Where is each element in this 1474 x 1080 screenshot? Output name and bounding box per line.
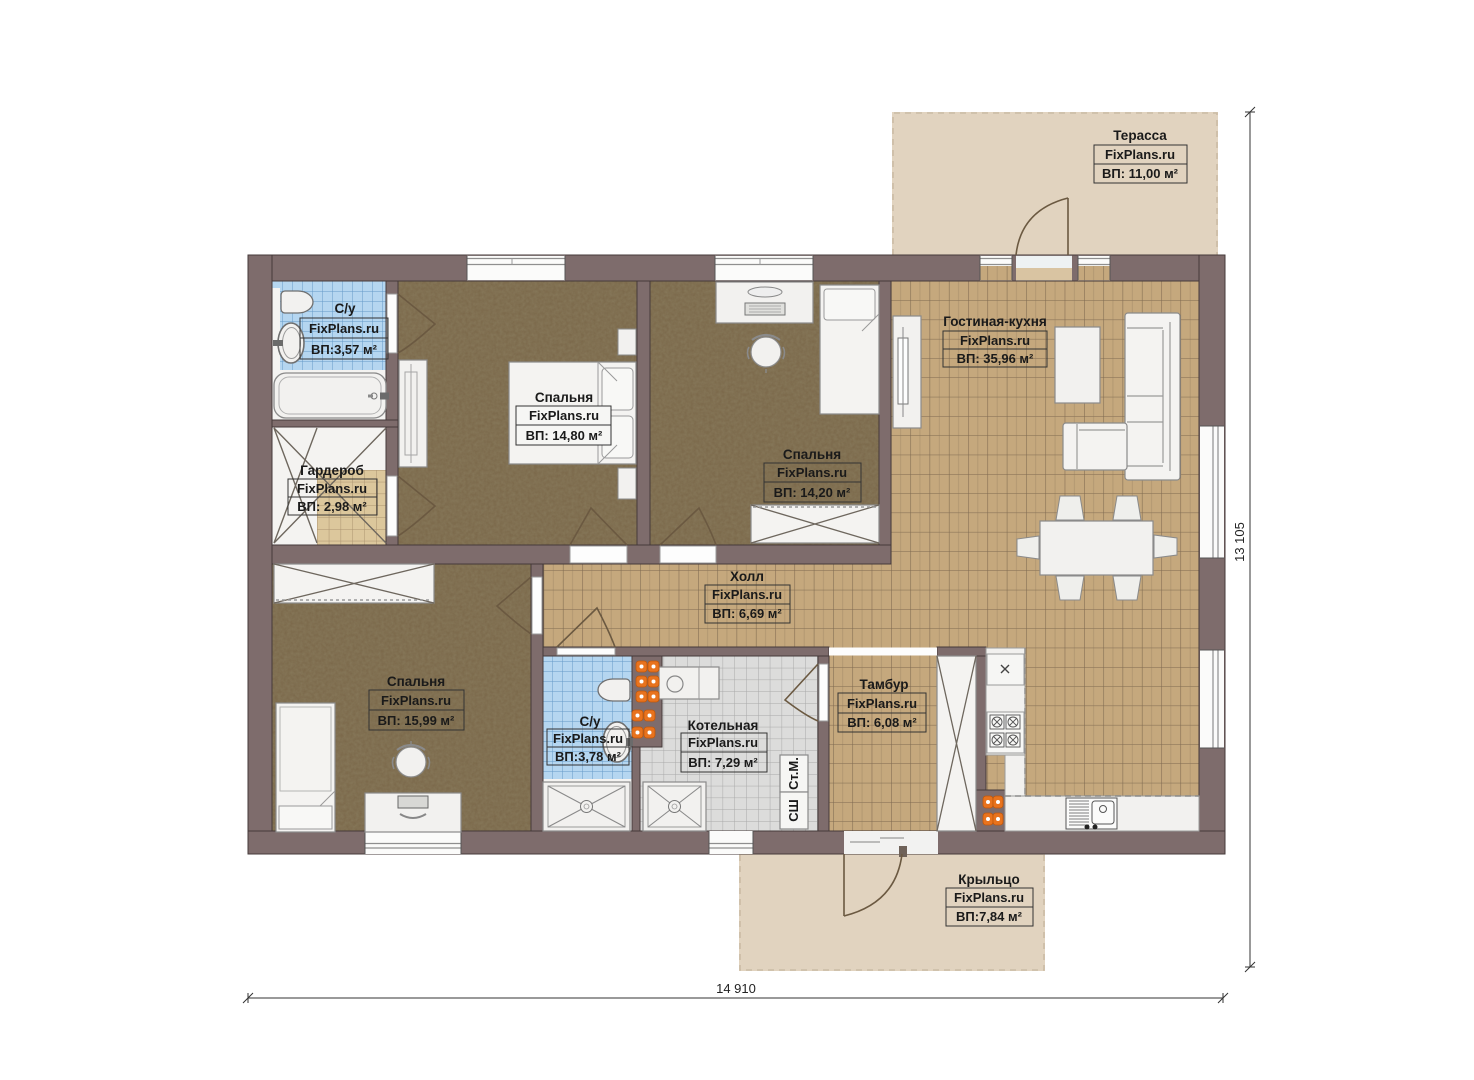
svg-text:FixPlans.ru: FixPlans.ru [960, 333, 1030, 348]
svg-text:ВП:3,57 м²: ВП:3,57 м² [311, 342, 378, 357]
svg-text:FixPlans.ru: FixPlans.ru [777, 465, 847, 480]
svg-text:FixPlans.ru: FixPlans.ru [309, 321, 379, 336]
svg-text:Терасса: Терасса [1113, 128, 1167, 143]
svg-text:С/у: С/у [579, 714, 601, 729]
svg-text:ВП:3,78 м²: ВП:3,78 м² [555, 749, 622, 764]
svg-text:FixPlans.ru: FixPlans.ru [553, 731, 623, 746]
svg-text:Крыльцо: Крыльцо [958, 872, 1019, 887]
svg-text:FixPlans.ru: FixPlans.ru [1105, 147, 1175, 162]
svg-text:Котельная: Котельная [688, 718, 759, 733]
svg-text:Ст.М.: Ст.М. [786, 757, 801, 790]
svg-text:ВП: 14,80 м²: ВП: 14,80 м² [526, 428, 603, 443]
svg-text:FixPlans.ru: FixPlans.ru [688, 735, 758, 750]
svg-text:ВП: 15,99 м²: ВП: 15,99 м² [378, 713, 455, 728]
svg-text:FixPlans.ru: FixPlans.ru [712, 587, 782, 602]
svg-text:ВП: 14,20 м²: ВП: 14,20 м² [774, 485, 851, 500]
svg-text:Спальня: Спальня [387, 674, 445, 689]
svg-text:13 105: 13 105 [1232, 522, 1247, 562]
svg-text:ВП: 2,98 м²: ВП: 2,98 м² [297, 499, 367, 514]
svg-text:ВП: 6,69 м²: ВП: 6,69 м² [712, 606, 782, 621]
svg-text:Гардероб: Гардероб [300, 463, 364, 478]
svg-text:FixPlans.ru: FixPlans.ru [297, 481, 367, 496]
svg-text:С/у: С/у [334, 301, 356, 316]
svg-text:СШ: СШ [786, 799, 801, 821]
svg-text:Гостиная-кухня: Гостиная-кухня [943, 314, 1046, 329]
svg-text:14 910: 14 910 [716, 981, 756, 996]
svg-text:FixPlans.ru: FixPlans.ru [954, 890, 1024, 905]
svg-text:Тамбур: Тамбур [860, 677, 909, 692]
svg-text:Холл: Холл [730, 569, 764, 584]
svg-text:FixPlans.ru: FixPlans.ru [847, 696, 917, 711]
svg-text:Спальня: Спальня [783, 447, 841, 462]
svg-text:ВП: 11,00 м²: ВП: 11,00 м² [1102, 166, 1179, 181]
svg-text:ВП: 7,29 м²: ВП: 7,29 м² [688, 755, 758, 770]
svg-text:FixPlans.ru: FixPlans.ru [381, 693, 451, 708]
svg-text:ВП:7,84 м²: ВП:7,84 м² [956, 909, 1023, 924]
svg-text:ВП: 6,08 м²: ВП: 6,08 м² [847, 715, 917, 730]
svg-text:Спальня: Спальня [535, 390, 593, 405]
svg-text:ВП: 35,96 м²: ВП: 35,96 м² [957, 351, 1034, 366]
svg-text:FixPlans.ru: FixPlans.ru [529, 408, 599, 423]
